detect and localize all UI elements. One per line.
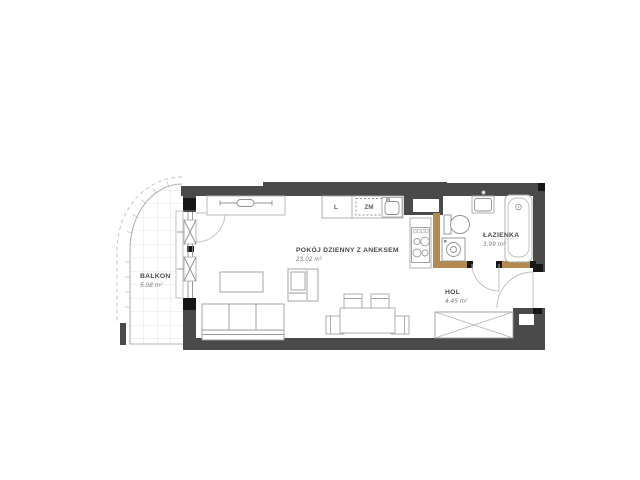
dining-table-set [326,294,409,334]
hall-furniture [435,312,513,338]
stove [412,228,430,263]
armchair [288,269,318,301]
dining-table [340,308,395,333]
coffee-table [220,272,263,292]
balcony-floor [130,184,183,344]
room-label-balkon: BALKON [140,273,171,280]
window-end-marker-bottom [183,298,196,310]
window-sill [176,211,183,298]
bathroom-door-swing [472,264,499,291]
window-end-marker-top [183,198,196,210]
radiator [207,196,285,215]
kitchen-sink [382,198,402,218]
room-area-balkon: 5.08 m² [140,282,163,289]
balcony [117,177,183,345]
door-frame-marker [533,308,542,314]
room-label-hol: HOL [445,289,460,296]
door-frame-marker [533,264,543,272]
floor-plan: BALKON 5.08 m² POKÓJ DZIENNY Z ANEKSEM 2… [0,0,640,480]
sofa [202,304,284,340]
bathtub [505,195,532,262]
threshold-bathroom-left [433,261,467,268]
entry-wall-niche [519,314,534,325]
living-room-furniture [202,269,409,340]
wall-top-mid [263,182,447,196]
balcony-window [176,211,196,298]
room-label-lazienka: ŁAZIENKA [483,232,519,239]
toilet [444,215,470,234]
washing-machine [442,238,465,261]
wardrobe [435,312,513,338]
room-area-hol: 4.45 m² [445,298,468,305]
balcony-door-swing [196,213,225,242]
wall-top-left [181,186,263,196]
floor-plan-canvas: BALKON 5.08 m² POKÓJ DZIENNY Z ANEKSEM 2… [0,0,640,480]
wall-right [533,196,545,272]
bathroom-fixtures [442,190,532,262]
corner-marker [538,183,545,191]
installation-shaft-void [413,199,439,212]
room-area-lazienka: 3.99 m² [483,241,506,248]
dishwasher-label: ZM [364,204,373,211]
doors [196,213,533,308]
wall-top-right [447,183,545,196]
balcony-wall-stub [120,323,126,345]
room-area-pokoj: 23.02 m² [295,256,323,263]
room-label-pokoj: POKÓJ DZIENNY Z ANEKSEM [296,245,399,254]
fridge-label: L [334,204,338,211]
partition-bathroom-left [433,213,440,261]
entrance-door-swing [497,272,533,308]
